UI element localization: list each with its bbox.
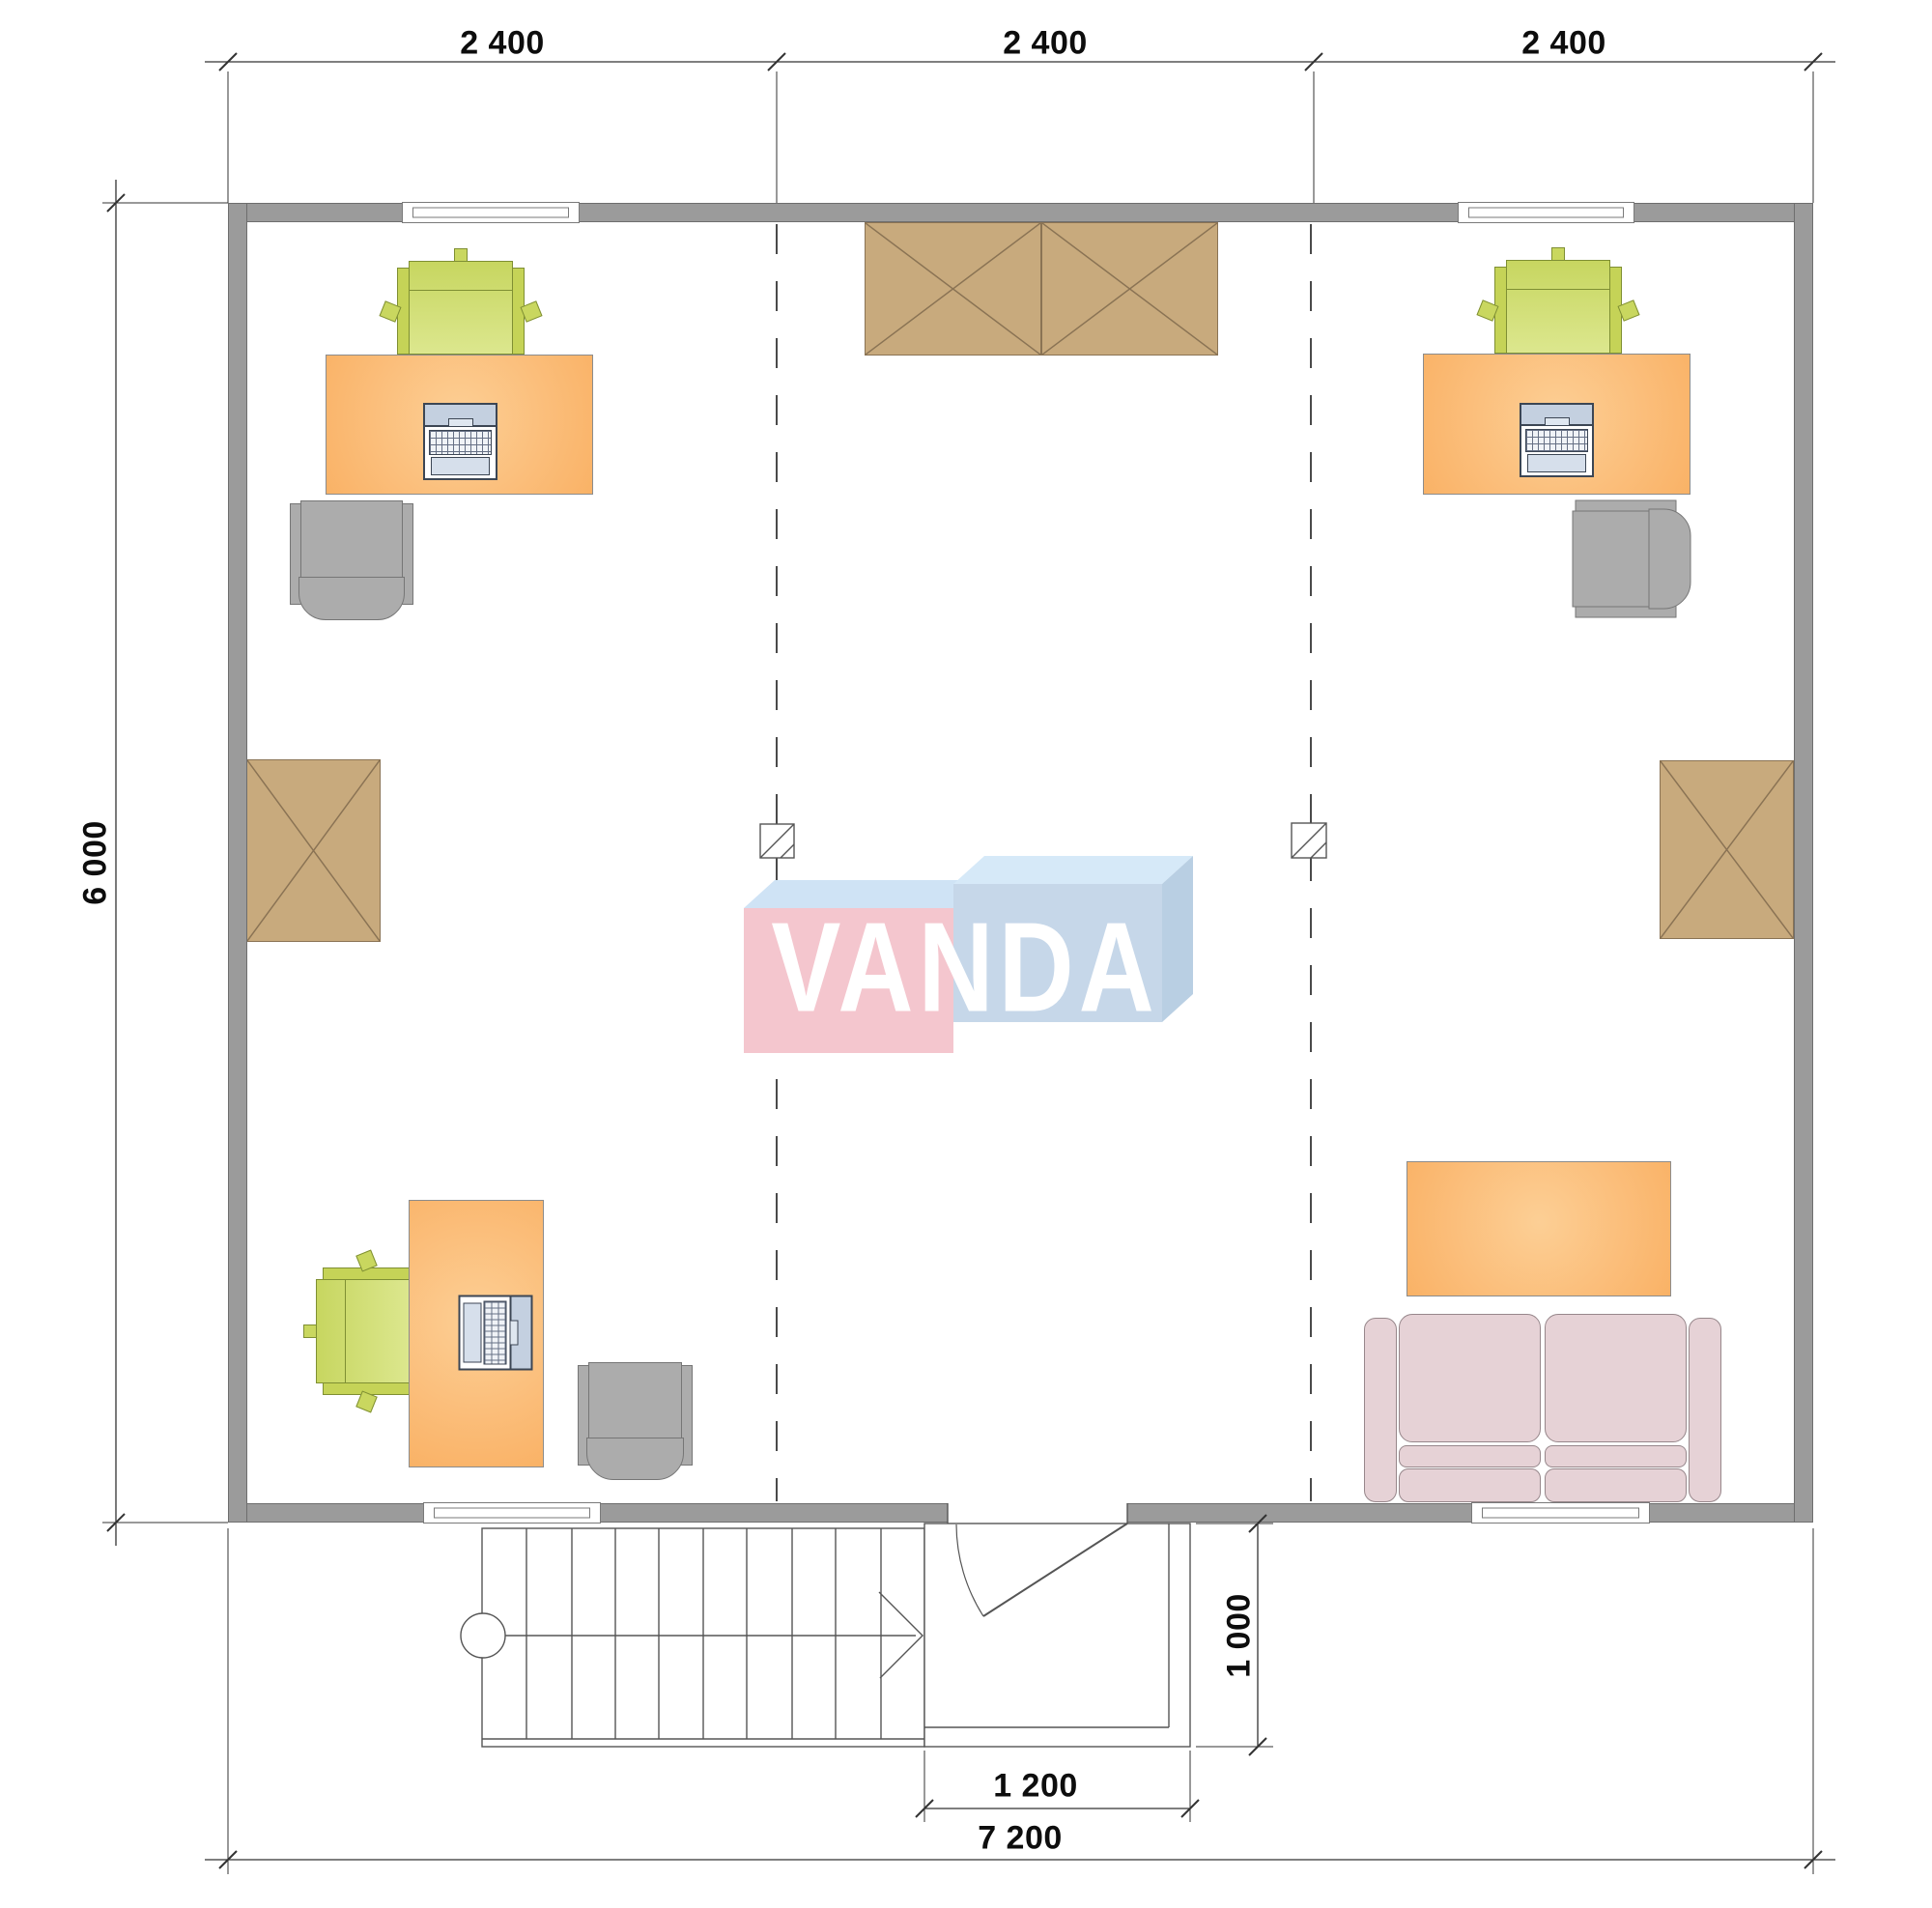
dim-label-porch-depth: 1 000: [1221, 1593, 1259, 1678]
dim-label-top-1: 2 400: [460, 25, 545, 63]
dim-label-top-2: 2 400: [1003, 25, 1088, 63]
dim-label-total-width: 7 200: [978, 1820, 1063, 1858]
dim-label-top-3: 2 400: [1521, 25, 1606, 63]
dim-label-height: 6 000: [77, 820, 115, 905]
linework-layer: [0, 0, 1932, 1908]
porch: [924, 1524, 1190, 1747]
dimension-top: [205, 53, 1835, 203]
stairs: [461, 1528, 924, 1747]
floor-plan: VANDA: [0, 0, 1932, 1908]
dim-label-entrance-width: 1 200: [993, 1768, 1078, 1806]
hatch-symbol-right: [1292, 823, 1326, 858]
stairs-start-circle: [461, 1613, 505, 1658]
dimension-left: [102, 180, 228, 1546]
hatch-symbol-left: [760, 824, 794, 858]
